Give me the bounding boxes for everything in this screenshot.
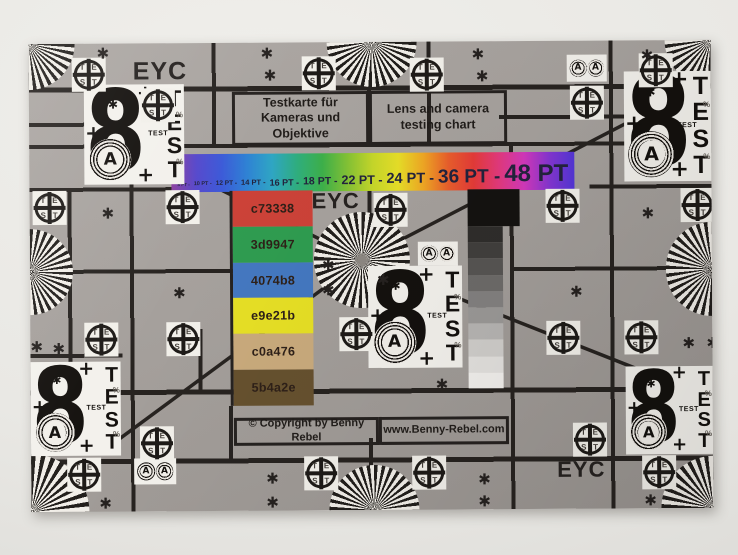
crosshair-test-target: TEST bbox=[32, 191, 66, 225]
test-small-label: TEST bbox=[427, 312, 447, 319]
circled-a-target: A bbox=[628, 131, 674, 177]
percent-mark: % bbox=[703, 152, 710, 161]
asterisk-mark: ✱ bbox=[570, 285, 583, 300]
crosshair-test-target: TEST bbox=[680, 188, 713, 222]
pt-size-label: 12 PT - bbox=[216, 181, 237, 187]
plus-mark: + bbox=[418, 264, 435, 284]
crosshair-test-target: TEST bbox=[373, 193, 407, 227]
grayscale-step bbox=[468, 307, 503, 323]
circled-a-target: A bbox=[421, 245, 438, 262]
asterisk-mark: ✱ bbox=[30, 340, 43, 355]
circled-a-target: A bbox=[570, 60, 587, 77]
grayscale-step bbox=[468, 275, 503, 291]
percent-mark: % bbox=[454, 292, 461, 301]
asterisk-mark: ✱ bbox=[391, 279, 401, 293]
color-patch-4074b8: 4074b8 bbox=[233, 262, 313, 298]
crosshair-test-target: TEST bbox=[573, 423, 607, 457]
asterisk-mark: ✱ bbox=[97, 47, 110, 62]
plus-mark: + bbox=[672, 364, 687, 382]
plus-mark: + bbox=[78, 360, 94, 379]
plus-mark: + bbox=[670, 159, 689, 181]
crosshair-test-target: TEST bbox=[166, 322, 200, 356]
test-small-label: TEST bbox=[148, 130, 168, 137]
pt-size-label: 22 PT - bbox=[341, 175, 382, 187]
asterisk-mark: ✱ bbox=[472, 47, 485, 62]
asterisk-mark: ✱ bbox=[266, 472, 279, 487]
grayscale-step bbox=[468, 340, 503, 356]
pt-size-label: 14 PT - bbox=[241, 180, 266, 187]
crosshair-ring bbox=[167, 192, 197, 222]
color-patch-c73338: c73338 bbox=[232, 190, 312, 226]
circled-a-target: A bbox=[35, 413, 74, 452]
asterisk-mark: ✱ bbox=[682, 336, 695, 351]
crosshair-test-target: TEST bbox=[624, 320, 658, 354]
plus-mark: + bbox=[418, 347, 435, 367]
crosshair-ring bbox=[644, 457, 674, 487]
plus-mark: + bbox=[137, 164, 154, 184]
font-size-gradient-bar: 8 PT -10 PT -12 PT -14 PT -16 PT -18 PT … bbox=[171, 152, 574, 192]
crosshair-test-target: TEST bbox=[412, 456, 446, 490]
crosshair-ring bbox=[34, 193, 64, 223]
asterisk-mark: ✱ bbox=[647, 378, 656, 391]
asterisk-mark: ✱ bbox=[102, 207, 115, 222]
crosshair-ring bbox=[575, 425, 605, 455]
circled-a-target: A bbox=[156, 462, 174, 480]
crosshair-test-target: TEST bbox=[67, 458, 101, 492]
crosshair-test-target: TEST bbox=[141, 88, 175, 122]
double-circle-target: AA bbox=[134, 458, 176, 484]
asterisk-mark: ✱ bbox=[478, 472, 491, 487]
crosshair-ring bbox=[304, 58, 334, 88]
percent-mark: % bbox=[454, 340, 461, 349]
crosshair-test-target: TEST bbox=[165, 190, 199, 224]
pt-size-label: 18 PT - bbox=[303, 177, 337, 187]
percent-mark: % bbox=[705, 429, 712, 438]
crosshair-test-target: TEST bbox=[410, 58, 444, 92]
background-wall: EYC EYC EYC Testkarte für Kameras und Ob… bbox=[0, 0, 738, 555]
asterisk-mark: ✱ bbox=[52, 342, 65, 357]
percent-mark: % bbox=[176, 157, 183, 166]
asterisk-mark: ✱ bbox=[377, 273, 390, 288]
asterisk-mark: ✱ bbox=[478, 494, 491, 509]
crosshair-test-target: TEST bbox=[545, 189, 579, 223]
asterisk-mark: ✱ bbox=[645, 86, 656, 101]
asterisk-mark: ✱ bbox=[476, 69, 489, 84]
crosshair-ring bbox=[306, 458, 336, 488]
crosshair-test-target: TEST bbox=[546, 321, 580, 355]
crosshair-test-target: TEST bbox=[140, 426, 174, 460]
patch-hex-label: 3d9947 bbox=[251, 237, 295, 251]
crosshair-test-target: TEST bbox=[304, 456, 338, 490]
crosshair-test-target: TEST bbox=[84, 323, 118, 357]
asterisk-mark: ✱ bbox=[322, 283, 335, 298]
crosshair-test-target: TEST bbox=[570, 86, 604, 120]
grayscale-step bbox=[468, 356, 503, 372]
asterisk-mark: ✱ bbox=[108, 98, 118, 112]
color-patch-column: c733383d99474074b8e9e21bc0a4765b4a2e bbox=[229, 190, 313, 406]
circled-a-target: A bbox=[438, 245, 455, 262]
copyright-box: © Copyright by Benny Rebel bbox=[234, 417, 379, 446]
color-patch-e9e21b: e9e21b bbox=[233, 298, 313, 334]
grayscale-step bbox=[468, 259, 503, 275]
patch-hex-label: c73338 bbox=[251, 201, 295, 215]
crosshair-test-target: TEST bbox=[642, 455, 676, 489]
color-patch-3d9947: 3d9947 bbox=[233, 226, 313, 262]
test-vertical-label: TEST bbox=[697, 369, 711, 452]
plus-mark: + bbox=[625, 113, 644, 135]
crosshair-test-target: TEST bbox=[339, 317, 373, 351]
website-box: www.Benny-Rebel.com bbox=[379, 416, 509, 445]
asterisk-mark: ✱ bbox=[642, 206, 655, 221]
crosshair-ring bbox=[682, 190, 712, 220]
figure-eight-target: 8TESTA✱TEST+++%% bbox=[31, 362, 122, 457]
title-box-english: Lens and camera testing chart bbox=[369, 90, 507, 145]
eyc-label-center: EYC bbox=[311, 188, 359, 214]
crosshair-ring bbox=[86, 325, 116, 355]
asterisk-mark: ✱ bbox=[644, 493, 657, 508]
percent-mark: % bbox=[113, 386, 120, 395]
crosshair-ring bbox=[376, 195, 406, 225]
test-small-label: TEST bbox=[87, 405, 107, 412]
plus-mark: + bbox=[79, 437, 95, 456]
plus-mark: + bbox=[85, 123, 102, 143]
patch-hex-label: e9e21b bbox=[251, 309, 295, 323]
asterisk-mark: ✱ bbox=[641, 48, 654, 63]
asterisk-mark: ✱ bbox=[266, 496, 279, 511]
crosshair-ring bbox=[414, 458, 444, 488]
pt-size-label: 24 PT - bbox=[386, 173, 434, 186]
double-circle-target: AA bbox=[567, 55, 607, 82]
pt-size-label: 10 PT - bbox=[194, 182, 212, 187]
percent-mark: % bbox=[113, 430, 120, 439]
circled-a-target: A bbox=[137, 463, 155, 481]
circled-a-target: A bbox=[587, 60, 604, 77]
grayscale-step bbox=[468, 226, 503, 242]
website-text: www.Benny-Rebel.com bbox=[383, 423, 504, 437]
title-en-line1: Lens and camera bbox=[387, 102, 489, 118]
asterisk-mark: ✱ bbox=[706, 336, 713, 351]
title-de-line1: Testkarte für bbox=[263, 95, 338, 111]
grayscale-step bbox=[468, 242, 503, 258]
crosshair-test-target: TEST bbox=[72, 58, 106, 92]
grayscale-step bbox=[468, 291, 503, 307]
crosshair-ring bbox=[412, 60, 442, 90]
test-small-label: TEST bbox=[679, 406, 699, 413]
grayscale-step-wedge bbox=[468, 226, 504, 388]
patch-hex-label: 5b4a2e bbox=[252, 381, 296, 395]
asterisk-mark: ✱ bbox=[264, 69, 277, 84]
crosshair-ring bbox=[572, 88, 602, 118]
color-patch-c0a476: c0a476 bbox=[233, 334, 313, 370]
color-patch-5b4a2e: 5b4a2e bbox=[234, 369, 314, 405]
pt-size-label: 36 PT - bbox=[438, 168, 500, 185]
figure-eight-target: 8TESTA✱TEST+++%% bbox=[624, 71, 712, 182]
crosshair-ring bbox=[547, 191, 577, 221]
asterisk-mark: ✱ bbox=[261, 47, 274, 62]
crosshair-ring bbox=[548, 323, 578, 353]
plus-mark: + bbox=[32, 398, 48, 417]
percent-mark: % bbox=[705, 389, 712, 398]
patch-hex-label: 4074b8 bbox=[251, 273, 295, 287]
asterisk-mark: ✱ bbox=[52, 374, 61, 387]
asterisk-mark: ✱ bbox=[99, 497, 112, 512]
circled-a-target: A bbox=[89, 138, 131, 180]
crosshair-ring bbox=[626, 322, 656, 352]
asterisk-mark: ✱ bbox=[322, 258, 335, 273]
pt-size-label: 16 PT - bbox=[270, 178, 300, 186]
eyc-label-bottom-right: EYC bbox=[557, 457, 605, 483]
pt-size-label: 48 PT bbox=[504, 163, 568, 185]
title-de-line2: Kameras und Objektive bbox=[235, 110, 366, 142]
eyc-label-top-left: EYC bbox=[133, 57, 188, 86]
grayscale-step bbox=[468, 323, 503, 339]
crosshair-ring bbox=[142, 428, 172, 458]
crosshair-ring bbox=[69, 460, 99, 490]
figure-eight-target: 8TESTA✱TEST+++%% bbox=[626, 366, 714, 455]
percent-mark: % bbox=[176, 110, 183, 119]
camera-test-chart: EYC EYC EYC Testkarte für Kameras und Ob… bbox=[29, 40, 714, 512]
crosshair-test-target: TEST bbox=[302, 56, 336, 90]
crosshair-ring bbox=[341, 319, 371, 349]
patch-hex-label: c0a476 bbox=[252, 345, 296, 359]
test-small-label: TEST bbox=[677, 122, 697, 129]
asterisk-mark: ✱ bbox=[436, 378, 449, 393]
grayscale-black-block bbox=[467, 189, 519, 226]
crosshair-ring bbox=[143, 90, 173, 120]
plus-mark: + bbox=[672, 436, 687, 454]
copyright-text: © Copyright by Benny Rebel bbox=[237, 417, 376, 445]
title-en-line2: testing chart bbox=[401, 117, 476, 133]
percent-mark: % bbox=[703, 100, 710, 109]
crosshair-ring bbox=[74, 60, 104, 90]
double-circle-target: AA bbox=[418, 241, 458, 265]
circled-a-target: A bbox=[373, 321, 416, 364]
title-box-german: Testkarte für Kameras und Objektive bbox=[232, 91, 369, 146]
grayscale-step bbox=[469, 372, 504, 388]
asterisk-mark: ✱ bbox=[173, 286, 186, 301]
crosshair-ring bbox=[168, 324, 198, 354]
